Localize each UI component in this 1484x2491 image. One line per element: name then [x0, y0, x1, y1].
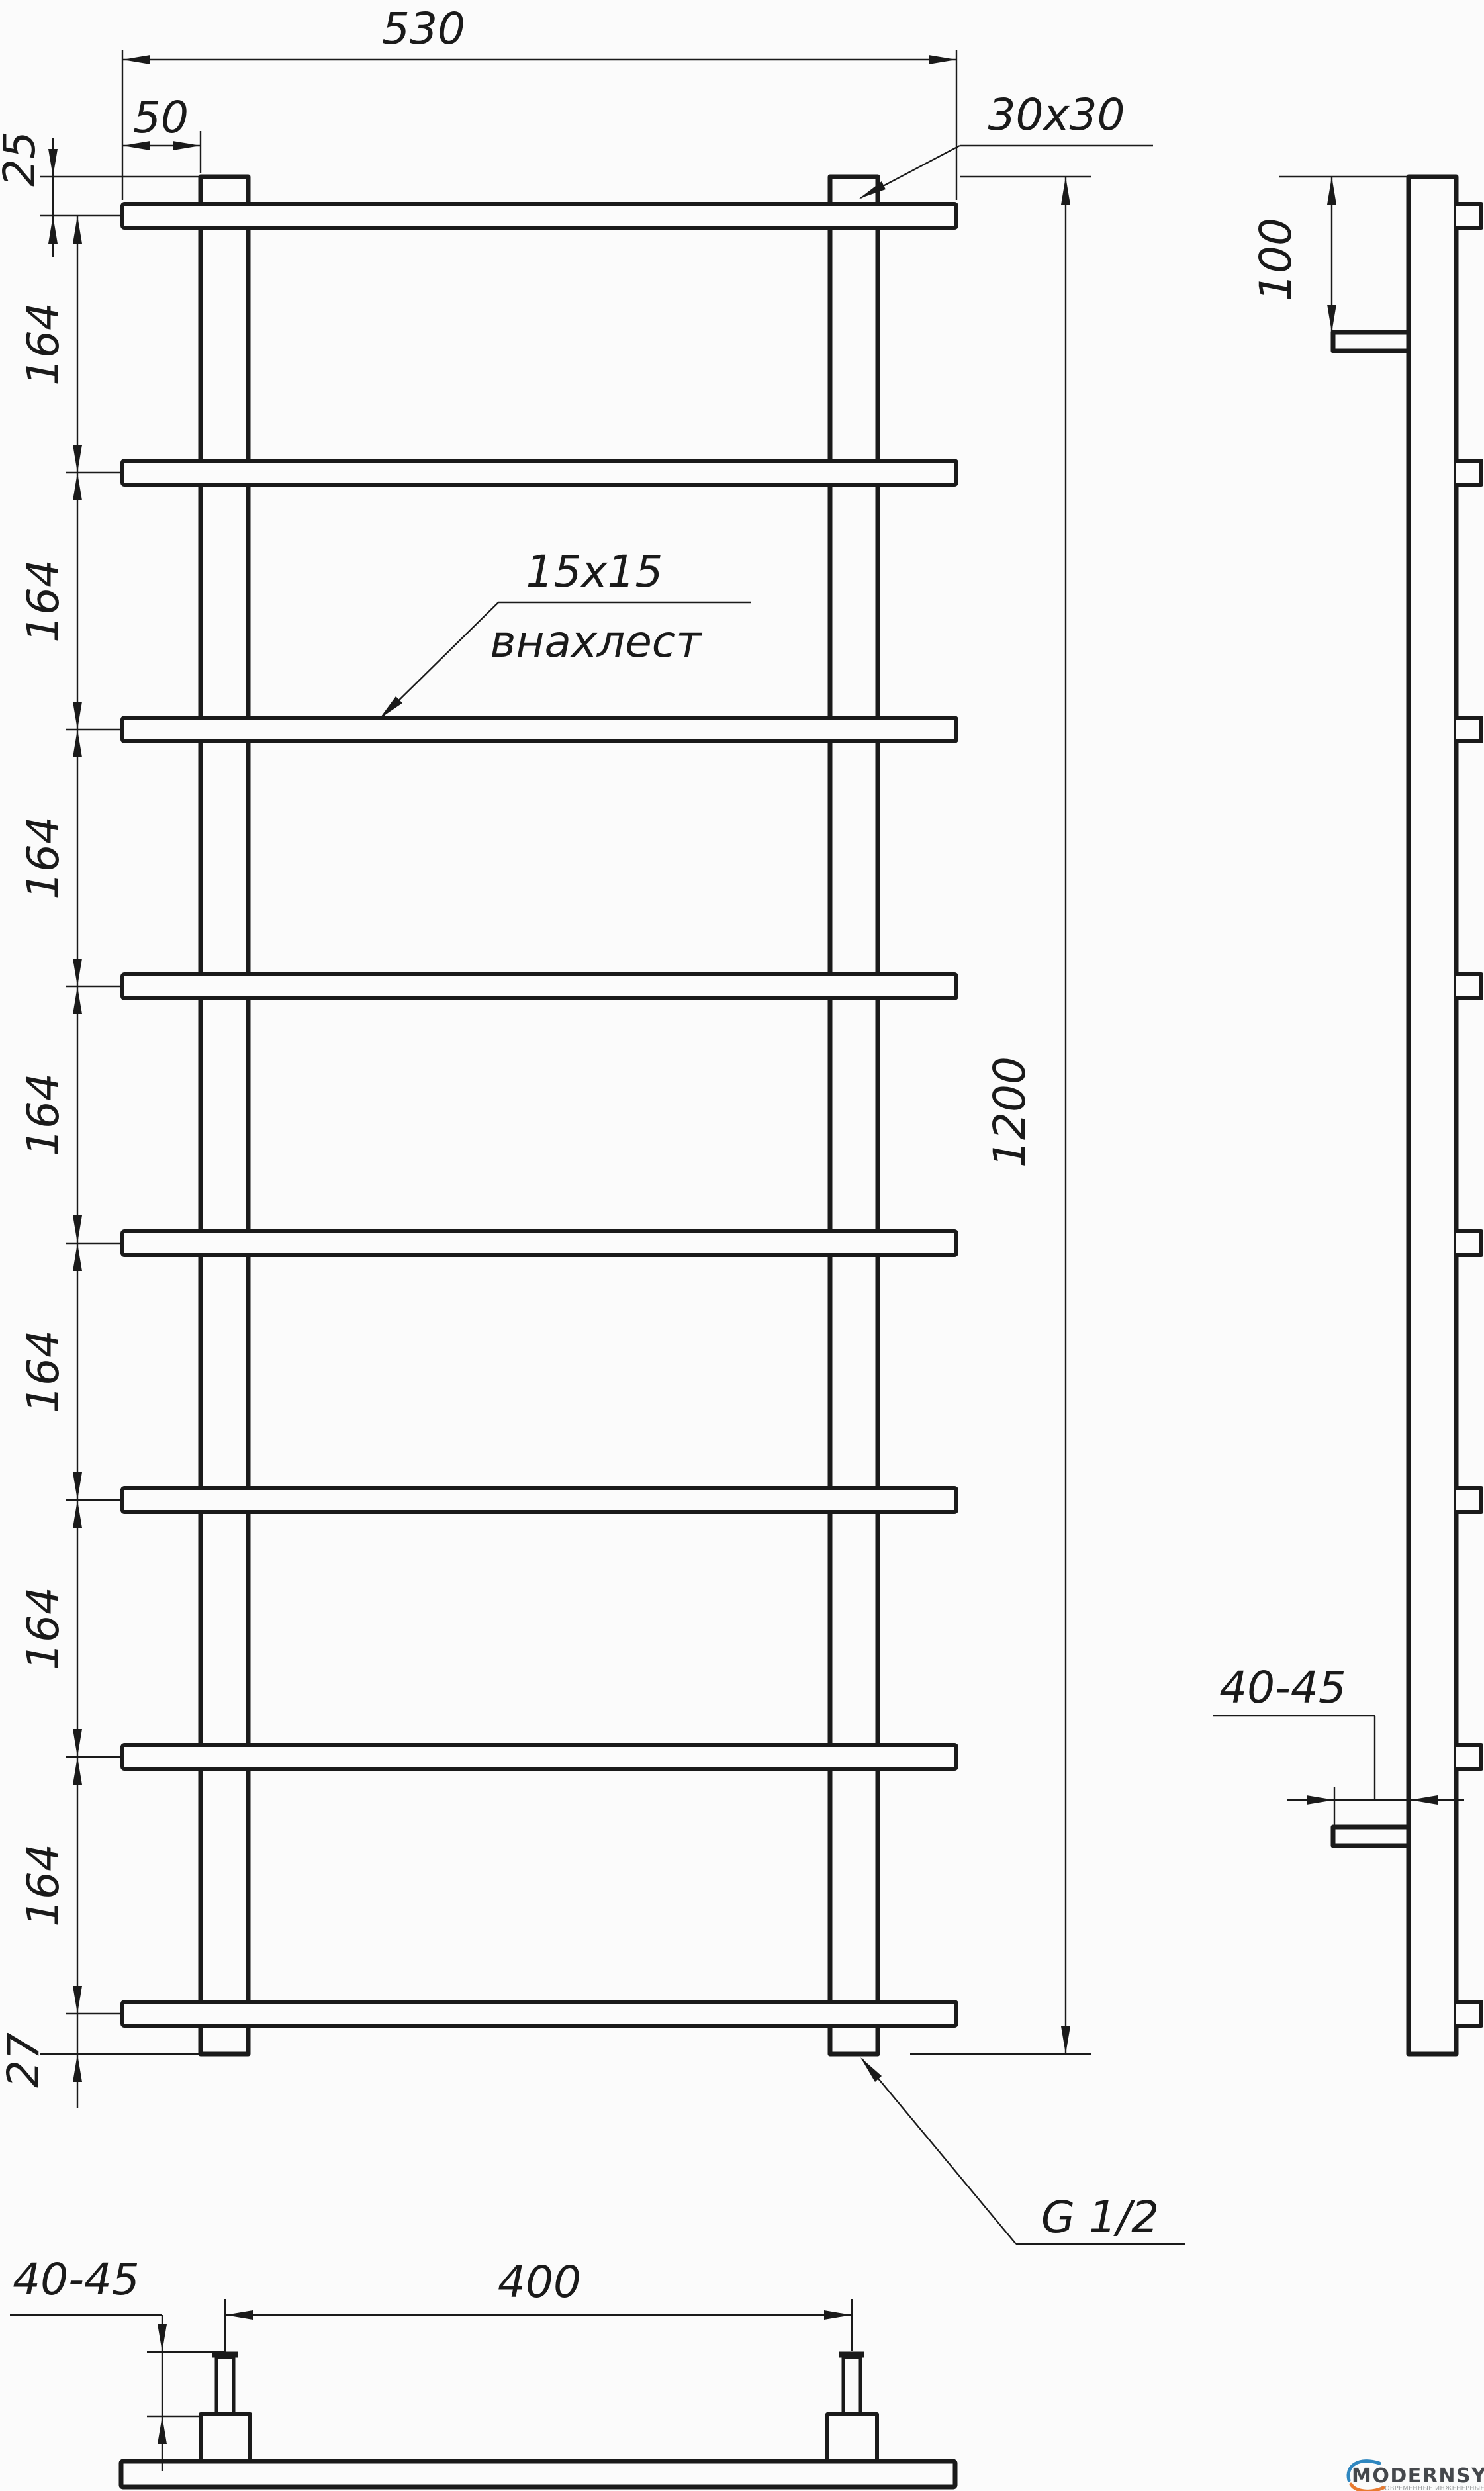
drawing-sheet: 530 50 25 164164164164164164164 27 — [0, 0, 1484, 2491]
top-wall-bracket — [1333, 332, 1409, 351]
dimension-width-530: 530 — [122, 3, 956, 200]
arrowhead — [73, 1472, 82, 1500]
arrowhead — [225, 2310, 253, 2320]
brand-logo: MODERNSYS СОВРЕМЕННЫЕ ИНЖЕНЕРНЫЕ СИСТЕМЫ — [1348, 2461, 1484, 2491]
right-connector-base — [827, 2414, 877, 2461]
arrowhead — [73, 1243, 82, 1271]
chain-marks: 164164164164164164164 — [18, 216, 122, 2014]
rung-4 — [122, 974, 956, 998]
label-thread: G 1/2 — [1041, 2192, 1159, 2243]
arrowhead — [73, 216, 82, 244]
arrowhead — [73, 959, 82, 986]
towel-rail-technical-drawing: 530 50 25 164164164164164164164 27 — [0, 0, 1484, 2491]
leader-rung-profile: 15x15 внахлест — [379, 546, 751, 719]
leader-thread: G 1/2 — [860, 2057, 1185, 2244]
dim-label-bottom-offset: 27 — [0, 2032, 49, 2088]
left-connector-stem — [216, 2357, 234, 2414]
dimension-height-1200: 1200 — [910, 177, 1091, 2054]
arrowhead — [824, 2310, 852, 2320]
right-connector-stem — [843, 2357, 860, 2414]
arrowhead — [73, 2054, 82, 2082]
bottom-view: 400 40-45 — [10, 2254, 955, 2487]
dim-label-width: 530 — [382, 3, 465, 54]
arrowhead — [48, 216, 58, 244]
arrowhead — [73, 1757, 82, 1785]
rung-tab-6 — [1456, 1488, 1481, 1512]
leader-arrowhead — [860, 2057, 882, 2082]
dim-label-wall-clearance-side: 40-45 — [1219, 1662, 1346, 1713]
right-vertical-tube — [830, 177, 878, 2054]
rung-tab-1 — [1456, 204, 1481, 228]
rung-7 — [122, 1745, 956, 1769]
rung-tab-7 — [1456, 1745, 1481, 1769]
label-rung-weld-note: внахлест — [490, 616, 703, 667]
vertical-tube-profile — [1409, 177, 1456, 2054]
leader-arrowhead — [379, 696, 402, 719]
arrowhead — [73, 986, 82, 1014]
rung-8 — [122, 2002, 956, 2026]
leader-tube-profile: 30x30 — [859, 89, 1153, 199]
arrowhead — [158, 2324, 167, 2352]
label-tube-profile: 30x30 — [988, 89, 1125, 140]
bottom-wall-bracket — [1333, 1827, 1409, 1846]
rung-1 — [122, 204, 956, 228]
dim-label-rung-spacing-6: 164 — [18, 1587, 69, 1670]
arrowhead — [73, 1729, 82, 1757]
dimension-chain-164: 164164164164164164164 — [18, 216, 122, 2108]
arrowhead — [1327, 305, 1336, 332]
rung-5 — [122, 1231, 956, 1255]
dimension-connector-spacing-400: 400 — [225, 2257, 852, 2351]
rung-tab-3 — [1456, 718, 1481, 741]
arrowhead — [122, 55, 150, 64]
dim-label-wall-clearance-bottom: 40-45 — [13, 2254, 140, 2305]
rung-tab-4 — [1456, 974, 1481, 998]
arrowhead — [73, 729, 82, 757]
rung-tab-5 — [1456, 1231, 1481, 1255]
arrowhead — [73, 445, 82, 473]
left-connector-base — [201, 2414, 250, 2461]
dim-label-connector-spacing: 400 — [498, 2257, 581, 2308]
dimension-wall-clearance-bottom: 40-45 — [10, 2254, 226, 2471]
arrowhead — [929, 55, 956, 64]
arrowhead — [1061, 2026, 1070, 2054]
arrowhead — [1307, 1795, 1334, 1805]
left-vertical-tube — [201, 177, 248, 2054]
dimension-bracket-offset-100: 100 — [1250, 177, 1409, 332]
dim-label-end-offset: 50 — [133, 92, 189, 143]
leader-line — [862, 2059, 1016, 2244]
side-view: 100 40-45 — [1213, 177, 1481, 2054]
rung-tab-2 — [1456, 461, 1481, 485]
arrowhead — [73, 1215, 82, 1243]
dim-label-bracket-offset: 100 — [1250, 218, 1301, 301]
dim-label-rung-spacing-2: 164 — [18, 559, 69, 643]
dim-label-height: 1200 — [984, 1057, 1035, 1168]
rung-tabs-group — [1456, 204, 1481, 2026]
rung-2 — [122, 461, 956, 485]
arrowhead — [73, 1986, 82, 2014]
dimension-bottom-offset-27: 27 — [0, 2032, 199, 2088]
rung-6 — [122, 1488, 956, 1512]
arrowhead — [48, 149, 58, 177]
dim-label-rung-spacing-1: 164 — [18, 303, 69, 386]
dim-label-top-offset: 25 — [0, 131, 45, 187]
front-view: 530 50 25 164164164164164164164 27 — [0, 3, 1185, 2244]
rung-3 — [122, 718, 956, 741]
dim-label-rung-spacing-7: 164 — [18, 1844, 69, 1927]
dim-label-rung-spacing-4: 164 — [18, 1073, 69, 1156]
logo-tagline-text: СОВРЕМЕННЫЕ ИНЖЕНЕРНЫЕ СИСТЕМЫ — [1380, 2485, 1484, 2491]
arrowhead — [1061, 177, 1070, 205]
arrowhead — [73, 1500, 82, 1528]
arrowhead — [158, 2416, 167, 2444]
dim-label-rung-spacing-5: 164 — [18, 1330, 69, 1413]
rung-tab-8 — [1456, 2002, 1481, 2026]
label-rung-profile: 15x15 — [526, 546, 663, 597]
leader-arrowhead — [859, 181, 886, 199]
logo-brand-text: MODERNSYS — [1352, 2465, 1484, 2488]
arrowhead — [73, 473, 82, 500]
rail-top-face — [121, 2461, 955, 2487]
dim-label-rung-spacing-3: 164 — [18, 816, 69, 900]
dimension-end-offset-50: 50 — [122, 92, 201, 173]
arrowhead — [73, 702, 82, 729]
arrowhead — [1327, 177, 1336, 205]
